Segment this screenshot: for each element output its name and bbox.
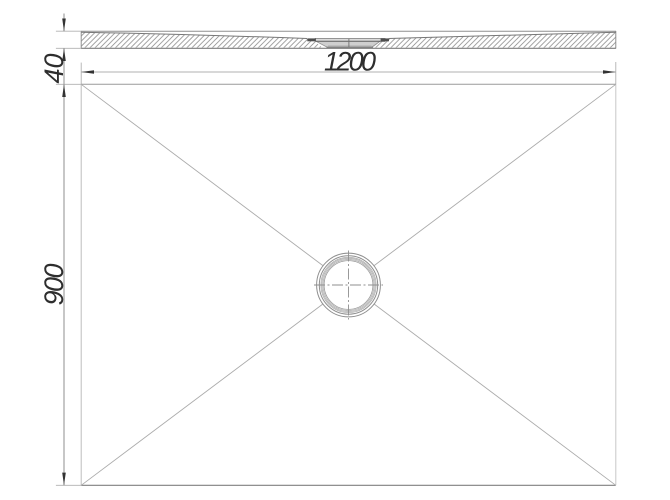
svg-text:900: 900	[39, 264, 69, 306]
svg-text:40: 40	[39, 54, 69, 84]
svg-text:1200: 1200	[324, 47, 376, 77]
